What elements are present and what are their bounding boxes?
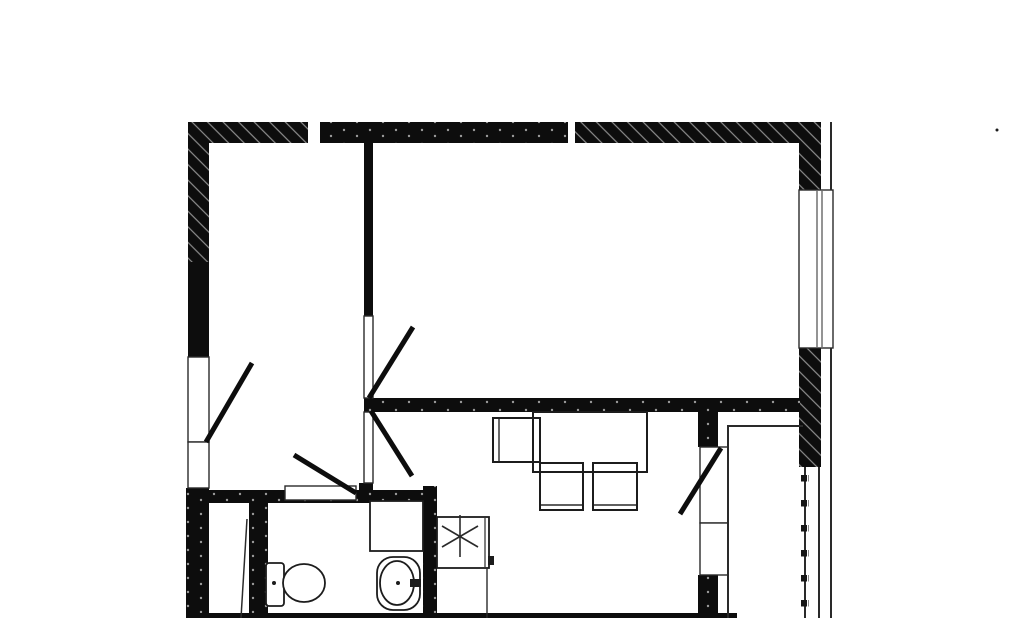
interior-wall-horizontal — [364, 398, 800, 412]
toilet-flush-dot — [272, 581, 276, 585]
left-wall-middle — [188, 262, 209, 357]
shower-tray — [370, 501, 423, 551]
kitchen-sink-tab — [488, 556, 494, 565]
kitchen-door-leaf — [371, 411, 412, 476]
bathroom-right-wall — [423, 486, 437, 618]
entrance-door-leaf — [206, 363, 252, 442]
balcony-inner-edge-horizontal — [727, 425, 803, 427]
right-wall-between-windows — [799, 348, 821, 467]
hall-door-leaf — [241, 519, 247, 618]
speck-artifact — [996, 129, 999, 132]
balcony-inner-edge-vertical — [727, 425, 729, 618]
room-door-leaf — [369, 327, 413, 398]
right-wall-top — [799, 122, 821, 190]
toilet-bowl — [283, 564, 325, 602]
floor-plan — [0, 0, 1024, 618]
interior-wall-vertical — [364, 142, 373, 316]
balcony-glazing-line — [818, 467, 820, 618]
kitchen-sink-box — [437, 517, 489, 568]
chair-bottom-2 — [593, 463, 637, 510]
main-window-frame — [799, 190, 833, 348]
floor-plan-drawing — [0, 0, 1024, 618]
balcony-railing-beads — [801, 472, 809, 618]
sink-drain-dot — [396, 581, 400, 585]
kitchen-door-opening — [364, 412, 373, 483]
left-wall-lower — [186, 488, 209, 618]
chair-bottom-1 — [540, 463, 583, 510]
balcony-window-frame — [700, 523, 728, 575]
entrance-door-opening — [188, 357, 209, 442]
left-wall-upper — [188, 122, 209, 262]
balcony-outer-line — [830, 467, 832, 618]
top-wall-middle-dotted — [320, 122, 568, 143]
balcony-wall-lower — [698, 575, 718, 618]
entrance-sidelight — [188, 442, 209, 488]
sink-faucet — [410, 579, 421, 587]
bottom-wall-edge — [188, 613, 737, 618]
balcony-wall-upper — [698, 412, 718, 447]
room-door-opening — [364, 316, 373, 398]
top-wall-right-hatched — [575, 122, 821, 143]
